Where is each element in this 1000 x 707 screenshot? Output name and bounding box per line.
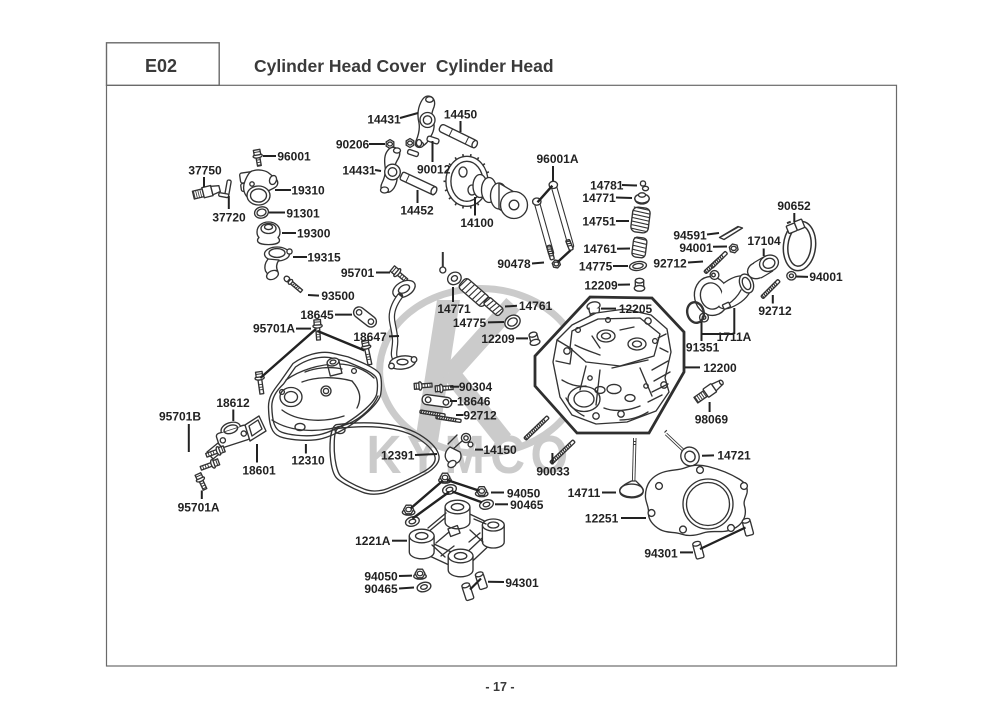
svg-text:14771: 14771 (437, 302, 471, 316)
svg-text:18646: 18646 (457, 394, 491, 408)
svg-text:17104: 17104 (747, 234, 781, 248)
svg-text:37720: 37720 (212, 210, 246, 224)
svg-text:94001: 94001 (679, 241, 713, 255)
svg-text:98069: 98069 (695, 413, 729, 427)
svg-text:14761: 14761 (583, 242, 617, 256)
svg-text:90478: 90478 (497, 257, 531, 271)
svg-text:18612: 18612 (216, 396, 250, 410)
svg-text:Cylinder Head Cover Cylinder: Cylinder Head Cover Cylinder Head (254, 56, 554, 76)
svg-text:12251: 12251 (585, 512, 619, 526)
svg-text:90304: 90304 (459, 380, 493, 394)
svg-text:96001: 96001 (277, 149, 311, 163)
svg-text:14721: 14721 (717, 449, 751, 463)
svg-text:14775: 14775 (453, 316, 487, 330)
svg-text:95701A: 95701A (178, 500, 220, 514)
svg-text:90033: 90033 (536, 465, 570, 479)
svg-text:95701B: 95701B (159, 410, 201, 424)
svg-text:14751: 14751 (582, 214, 616, 228)
svg-text:37750: 37750 (188, 163, 222, 177)
svg-text:1711A: 1711A (717, 330, 752, 344)
svg-text:14761: 14761 (519, 299, 553, 313)
svg-text:18647: 18647 (353, 330, 387, 344)
svg-text:14775: 14775 (579, 259, 613, 273)
svg-text:93500: 93500 (321, 289, 355, 303)
svg-text:12310: 12310 (291, 453, 325, 467)
svg-text:12209: 12209 (584, 278, 618, 292)
svg-text:14100: 14100 (460, 216, 494, 230)
svg-text:91301: 91301 (286, 206, 320, 220)
svg-text:12205: 12205 (619, 302, 653, 316)
svg-text:94001: 94001 (809, 270, 843, 284)
svg-text:18645: 18645 (300, 308, 334, 322)
svg-text:14431: 14431 (367, 112, 401, 126)
svg-text:92712: 92712 (463, 408, 497, 422)
svg-text:90465: 90465 (364, 582, 398, 596)
svg-text:1221A: 1221A (355, 534, 391, 548)
svg-text:92712: 92712 (653, 256, 687, 270)
svg-text:12391: 12391 (381, 449, 415, 463)
svg-text:12209: 12209 (481, 332, 515, 346)
svg-text:19310: 19310 (291, 183, 325, 197)
svg-text:95701A: 95701A (253, 322, 295, 336)
svg-text:94301: 94301 (644, 546, 678, 560)
svg-text:19300: 19300 (297, 226, 331, 240)
svg-text:90206: 90206 (336, 137, 370, 151)
svg-text:14150: 14150 (483, 443, 517, 457)
svg-text:14711: 14711 (568, 486, 601, 500)
svg-text:92712: 92712 (758, 304, 792, 318)
svg-text:94301: 94301 (505, 576, 539, 590)
svg-text:95701: 95701 (341, 266, 375, 280)
svg-text:90012: 90012 (417, 162, 451, 176)
svg-text:18601: 18601 (242, 463, 276, 477)
svg-text:90652: 90652 (777, 199, 811, 213)
svg-text:- 17 -: - 17 - (485, 680, 514, 694)
svg-text:90465: 90465 (510, 498, 544, 512)
svg-text:E02: E02 (145, 56, 177, 76)
svg-text:19315: 19315 (307, 250, 341, 264)
svg-text:91351: 91351 (686, 341, 720, 355)
svg-text:12200: 12200 (703, 361, 737, 375)
svg-text:96001A: 96001A (536, 152, 578, 166)
svg-text:14431: 14431 (342, 163, 376, 177)
svg-text:14452: 14452 (400, 203, 434, 217)
svg-text:14771: 14771 (582, 191, 616, 205)
svg-text:14450: 14450 (444, 107, 478, 121)
